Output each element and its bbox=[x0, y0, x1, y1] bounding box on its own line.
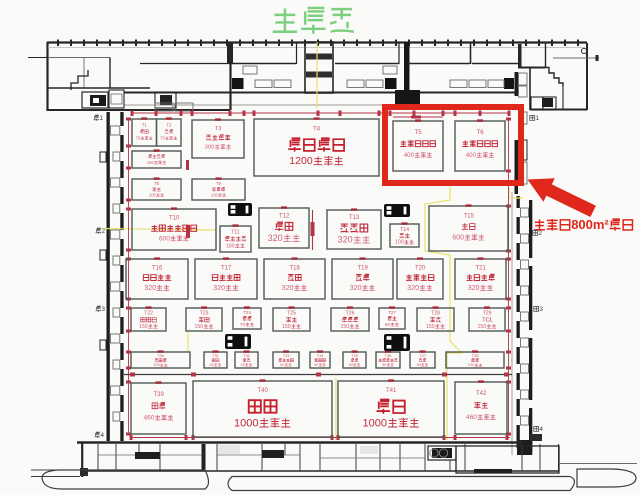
svg-text:1000: 1000 bbox=[234, 417, 258, 429]
svg-text:T30: T30 bbox=[157, 353, 165, 358]
svg-text:4: 4 bbox=[100, 432, 104, 439]
svg-text:T22: T22 bbox=[144, 311, 153, 317]
svg-text:100: 100 bbox=[211, 192, 219, 197]
svg-text:50: 50 bbox=[210, 363, 214, 367]
svg-text:T16: T16 bbox=[152, 265, 163, 271]
svg-text:460: 460 bbox=[466, 414, 477, 421]
svg-text:T15: T15 bbox=[464, 214, 475, 220]
svg-text:T40: T40 bbox=[258, 388, 269, 394]
svg-text:T21: T21 bbox=[476, 265, 487, 271]
svg-text:T39: T39 bbox=[154, 392, 165, 398]
svg-text:3: 3 bbox=[539, 306, 543, 313]
svg-text:400: 400 bbox=[466, 152, 477, 159]
svg-text:T23: T23 bbox=[200, 311, 209, 317]
svg-text:100: 100 bbox=[149, 192, 157, 197]
svg-text:150: 150 bbox=[426, 324, 435, 330]
svg-text:320: 320 bbox=[468, 285, 480, 292]
svg-text:460: 460 bbox=[144, 415, 155, 422]
svg-text:70: 70 bbox=[240, 322, 246, 327]
svg-text:2: 2 bbox=[538, 230, 542, 237]
svg-text:T6: T6 bbox=[477, 130, 485, 136]
svg-text:T33: T33 bbox=[283, 354, 290, 358]
svg-text:2: 2 bbox=[101, 228, 105, 235]
svg-text:320: 320 bbox=[407, 285, 419, 292]
svg-text:T27: T27 bbox=[388, 310, 396, 315]
svg-text:T1: T1 bbox=[142, 122, 148, 127]
svg-text:150: 150 bbox=[139, 324, 148, 330]
svg-text:70: 70 bbox=[136, 136, 141, 141]
svg-text:T24: T24 bbox=[243, 310, 251, 315]
svg-text:T12: T12 bbox=[279, 213, 290, 219]
svg-text:50: 50 bbox=[382, 363, 386, 367]
svg-text:150: 150 bbox=[195, 324, 204, 330]
svg-text:1200: 1200 bbox=[289, 155, 313, 167]
svg-text:T26: T26 bbox=[346, 311, 355, 317]
svg-text:T4: T4 bbox=[313, 127, 321, 133]
svg-text:400: 400 bbox=[404, 152, 415, 159]
svg-text:T25: T25 bbox=[287, 311, 296, 317]
svg-text:TCL: TCL bbox=[482, 318, 494, 324]
svg-text:100: 100 bbox=[395, 240, 404, 246]
svg-text:50: 50 bbox=[314, 363, 318, 367]
svg-text:T31: T31 bbox=[212, 354, 219, 358]
svg-text:T11: T11 bbox=[231, 229, 240, 235]
svg-text:320: 320 bbox=[350, 285, 362, 292]
svg-text:100: 100 bbox=[153, 362, 160, 367]
svg-text:800m²: 800m² bbox=[571, 217, 609, 232]
svg-text:320: 320 bbox=[144, 285, 156, 292]
svg-text:T29: T29 bbox=[483, 311, 492, 317]
svg-text:320: 320 bbox=[268, 233, 283, 243]
svg-text:T41: T41 bbox=[386, 388, 397, 394]
svg-text:50: 50 bbox=[417, 363, 421, 367]
svg-text:320: 320 bbox=[213, 285, 225, 292]
svg-text:80: 80 bbox=[385, 322, 391, 327]
svg-text:320: 320 bbox=[282, 285, 294, 292]
svg-text:600: 600 bbox=[159, 236, 170, 243]
svg-text:3: 3 bbox=[101, 306, 105, 313]
svg-text:T8: T8 bbox=[154, 181, 160, 186]
svg-text:T9: T9 bbox=[216, 181, 222, 186]
svg-text:50: 50 bbox=[349, 363, 353, 367]
svg-text:T10: T10 bbox=[169, 216, 180, 222]
svg-text:4: 4 bbox=[539, 426, 543, 433]
svg-text:150: 150 bbox=[282, 324, 291, 330]
svg-text:T17: T17 bbox=[221, 265, 232, 271]
svg-text:T28: T28 bbox=[431, 311, 440, 317]
svg-text:T34: T34 bbox=[317, 354, 324, 358]
svg-text:T37: T37 bbox=[419, 354, 426, 358]
svg-text:T13: T13 bbox=[349, 215, 360, 221]
svg-text:1000: 1000 bbox=[363, 417, 387, 429]
svg-text:50: 50 bbox=[241, 363, 245, 367]
svg-text:T3: T3 bbox=[215, 126, 221, 132]
svg-text:180: 180 bbox=[226, 243, 235, 249]
svg-text:T18: T18 bbox=[290, 265, 301, 271]
svg-text:T38: T38 bbox=[472, 353, 480, 358]
svg-text:T35: T35 bbox=[351, 354, 358, 358]
svg-text:100: 100 bbox=[468, 362, 475, 367]
svg-text:1: 1 bbox=[99, 115, 103, 122]
svg-text:1: 1 bbox=[535, 115, 539, 122]
svg-text:600: 600 bbox=[452, 235, 464, 242]
svg-text:50: 50 bbox=[280, 363, 284, 367]
svg-text:T14: T14 bbox=[400, 227, 409, 233]
svg-text:T2: T2 bbox=[166, 122, 172, 127]
svg-text:320: 320 bbox=[338, 235, 353, 245]
svg-text:160: 160 bbox=[147, 160, 155, 165]
svg-text:T36: T36 bbox=[385, 354, 392, 358]
svg-text:300: 300 bbox=[205, 145, 215, 151]
svg-text:T20: T20 bbox=[415, 265, 426, 271]
svg-text:70: 70 bbox=[160, 136, 165, 141]
svg-text:150: 150 bbox=[341, 324, 350, 330]
svg-text:T19: T19 bbox=[358, 265, 369, 271]
svg-text:T5: T5 bbox=[415, 130, 423, 136]
svg-text:T32: T32 bbox=[243, 354, 250, 358]
svg-text:150: 150 bbox=[478, 324, 487, 330]
svg-text:T42: T42 bbox=[476, 391, 487, 397]
